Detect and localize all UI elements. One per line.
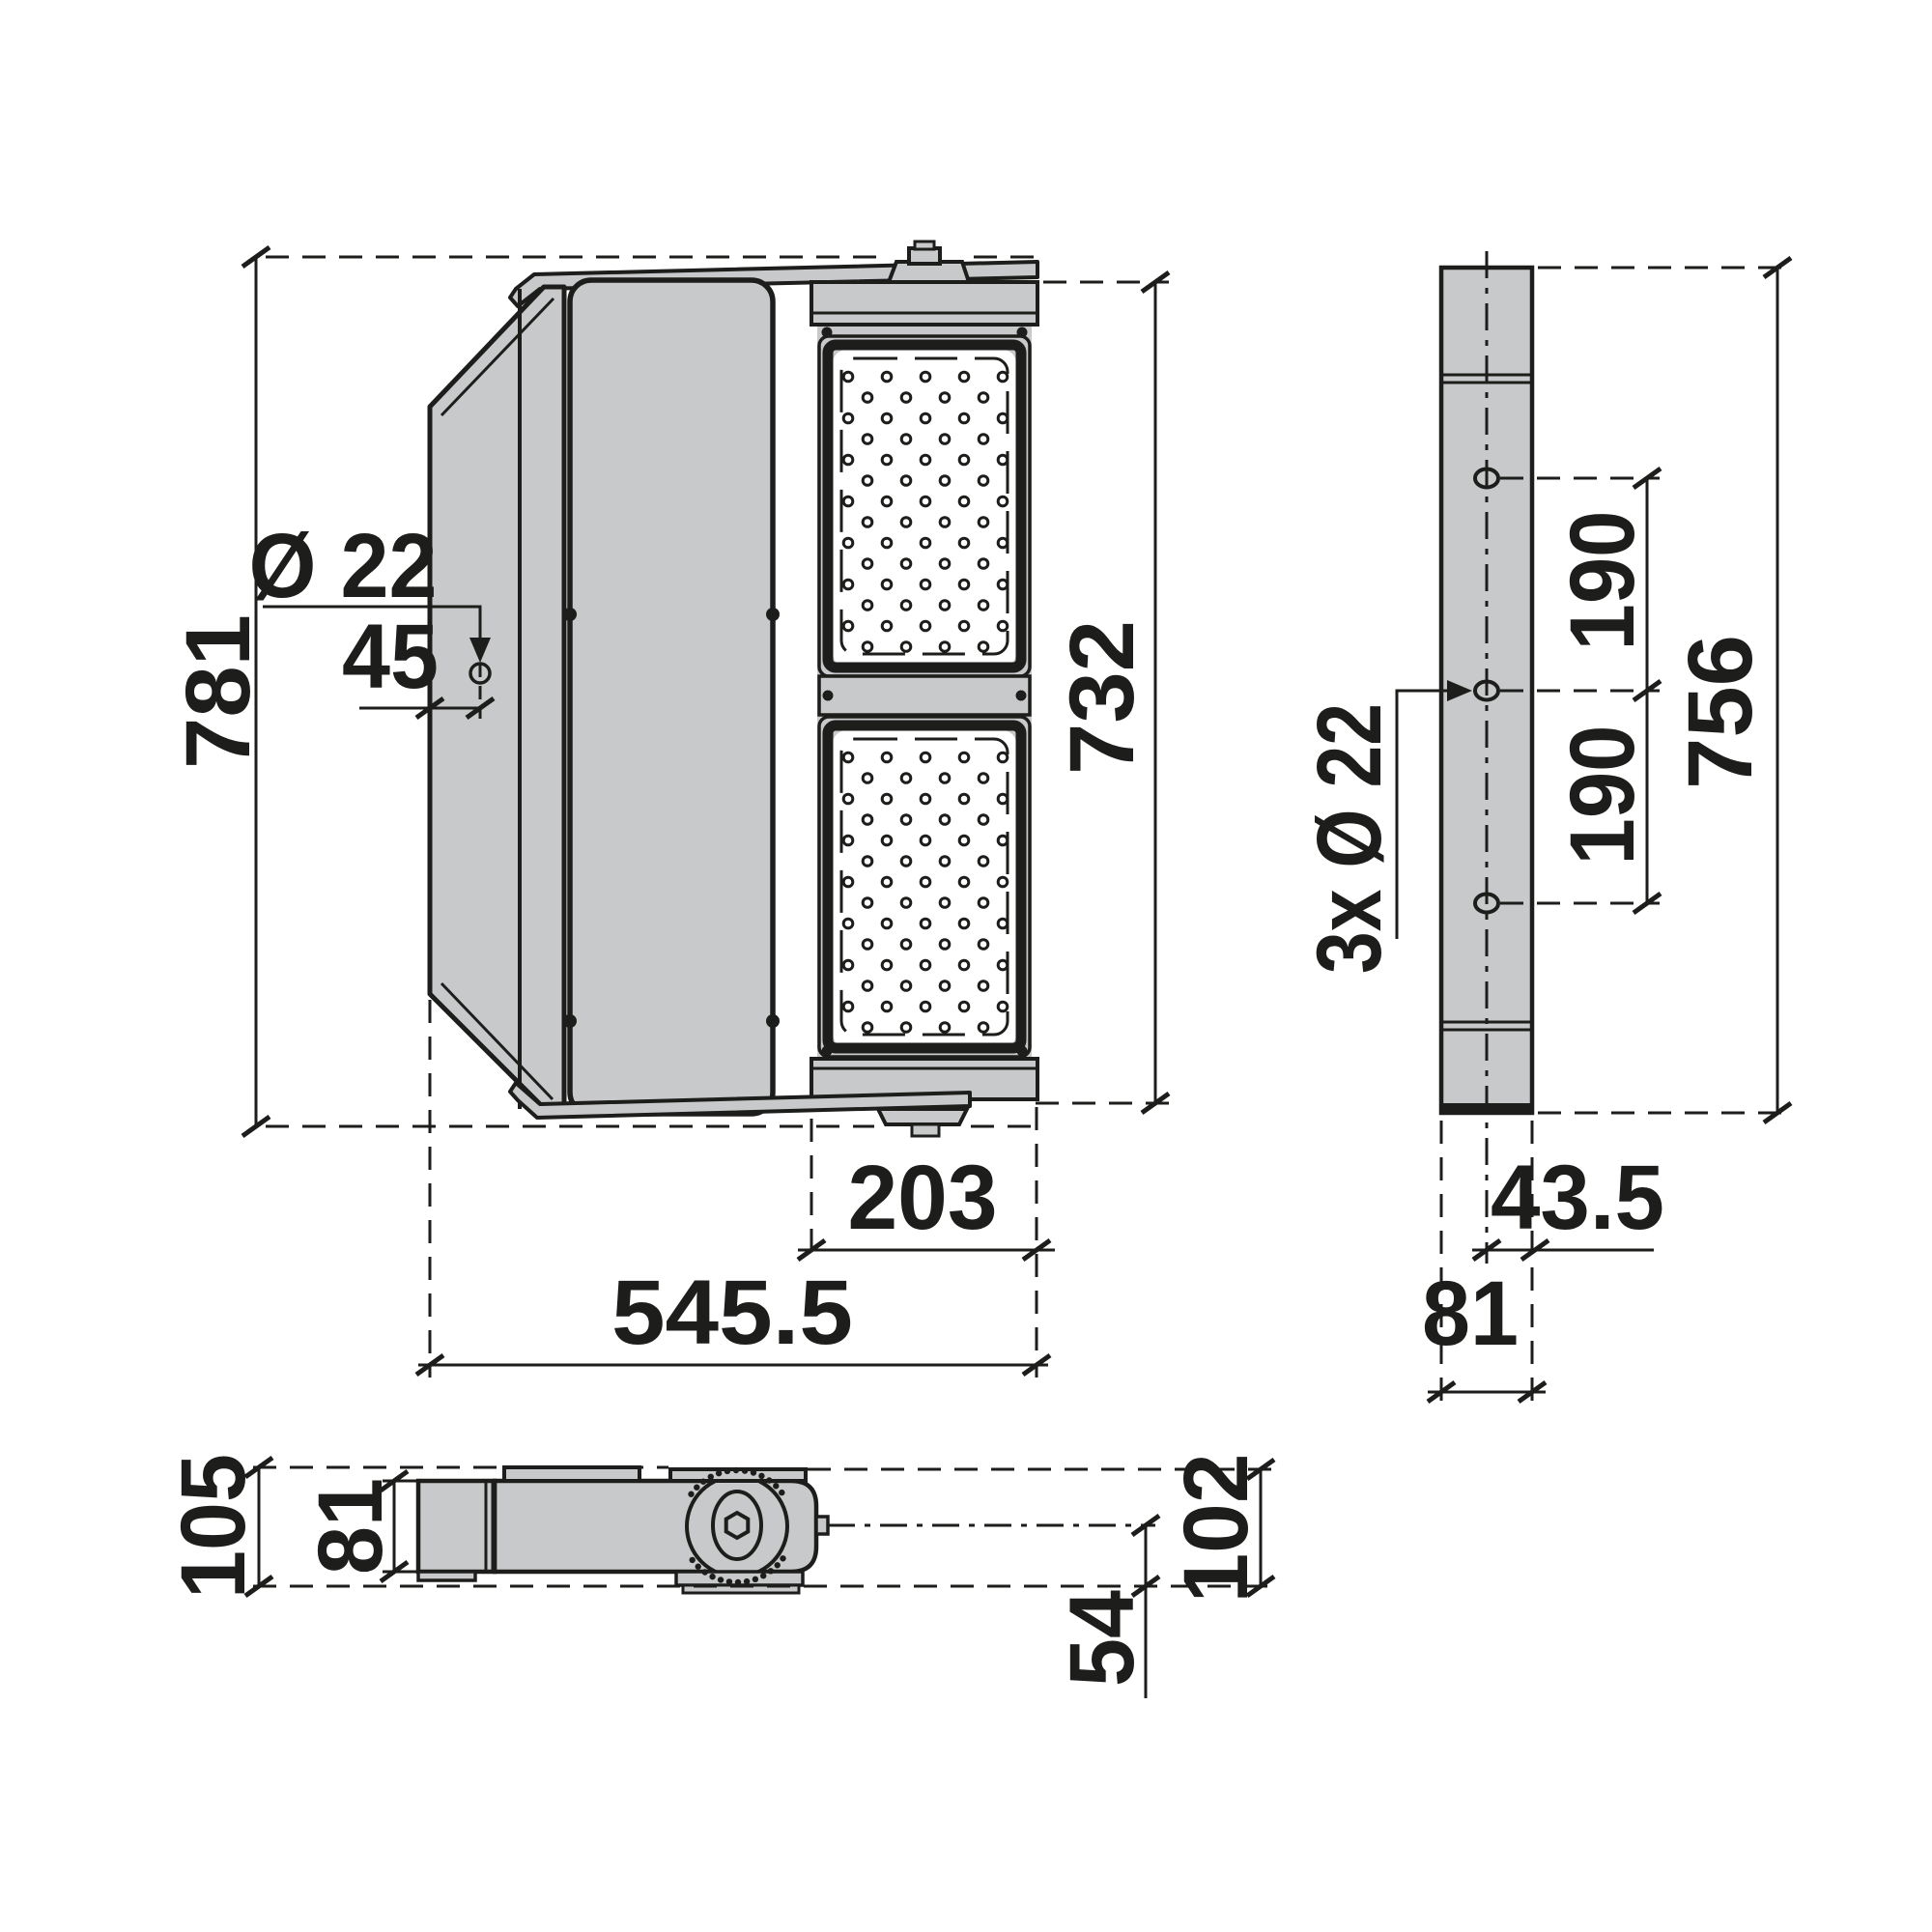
led-stack (811, 282, 1037, 1099)
top-view: 105 81 102 54 (162, 1454, 1274, 1699)
screw-dot (1016, 691, 1027, 701)
dim-side-mounting-holes: 3x Ø 22 (1298, 703, 1401, 974)
panel-pivot-dot (766, 608, 780, 621)
dim-front-led-height: 732 (1051, 620, 1153, 775)
panel-pivot-dot (563, 1014, 577, 1028)
led-top-cap (811, 282, 1037, 325)
panel-pivot-dot (563, 608, 577, 621)
arm-top-rib (504, 1467, 639, 1481)
front-view: 781 Ø 22 45 732 203 545.5 (167, 241, 1169, 1378)
dimension-drawing-canvas: 781 Ø 22 45 732 203 545.5 (0, 0, 1932, 1932)
dim-front-hole-offset: 45 (342, 606, 439, 708)
dim-top-bracket-height: 102 (1165, 1454, 1267, 1604)
screw-dot (1017, 1046, 1028, 1057)
dim-front-overall-height: 781 (167, 614, 270, 769)
dim-front-module-width: 203 (848, 1147, 998, 1249)
bottom-knob-nub (912, 1124, 939, 1136)
side-view: 190 190 756 3x Ø 22 43.5 81 (1298, 251, 1791, 1403)
dim-front-hole-diameter: Ø 22 (249, 515, 438, 617)
panel-pivot-dot (766, 1014, 780, 1028)
yoke-block (418, 1481, 495, 1572)
dim-top-body-depth: 81 (299, 1478, 402, 1575)
dim-side-profile-width: 81 (1422, 1263, 1519, 1365)
top-knob-nub (915, 241, 934, 249)
led-module-2 (819, 717, 1030, 1057)
dim-side-center-to-edge: 43.5 (1491, 1147, 1664, 1249)
dim-front-overall-width: 545.5 (611, 1262, 853, 1364)
dim-side-overall-height: 756 (1669, 635, 1772, 789)
hinge-stub (816, 1517, 828, 1534)
screw-dot (823, 691, 834, 701)
dim-side-hole-spacing-lower: 190 (1551, 725, 1654, 866)
dim-top-pivot-offset: 54 (1051, 1590, 1153, 1687)
led-module-1 (819, 336, 1030, 676)
dim-side-hole-spacing-upper: 190 (1551, 511, 1654, 651)
housing-body (430, 287, 564, 1111)
heatsink-panel (570, 280, 773, 1114)
led-separator (819, 676, 1030, 715)
bottom-knob-base (878, 1109, 967, 1124)
dim-top-overall-depth: 105 (162, 1454, 265, 1599)
yoke-step (418, 1572, 475, 1580)
screw-dot (822, 1046, 833, 1057)
technical-drawing-page: 781 Ø 22 45 732 203 545.5 (0, 0, 1932, 1932)
side-dimensions: 190 190 756 3x Ø 22 43.5 81 (1298, 258, 1791, 1403)
